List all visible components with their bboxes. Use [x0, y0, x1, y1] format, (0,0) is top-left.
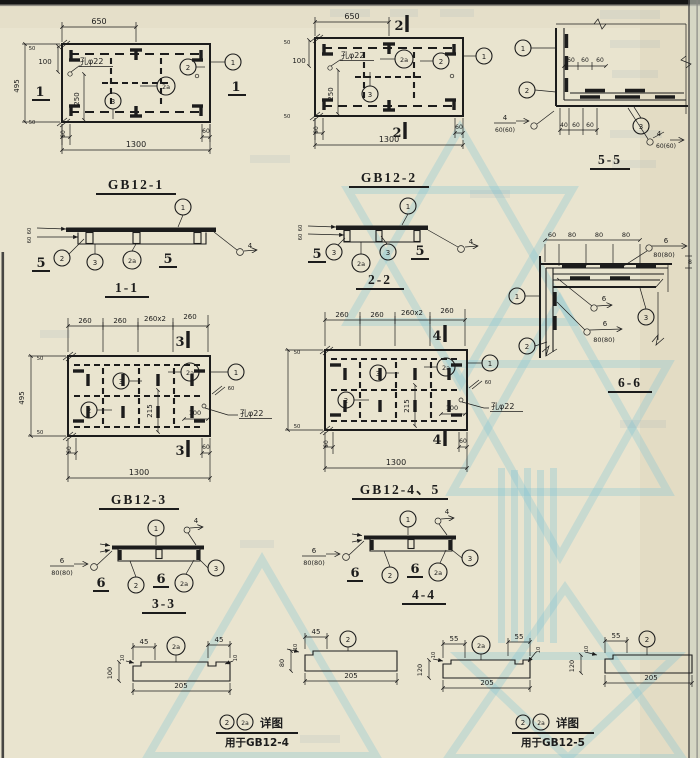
svg-text:60: 60: [202, 128, 210, 135]
svg-text:3: 3: [376, 370, 380, 378]
dim-label: 10: [293, 644, 299, 651]
svg-text:60: 60: [485, 380, 492, 386]
svg-text:2: 2: [60, 255, 64, 263]
svg-text:3: 3: [644, 314, 648, 322]
svg-text:60(60): 60(60): [495, 127, 515, 134]
figure-title: GB12-1: [96, 177, 176, 194]
svg-text:2: 2: [186, 64, 190, 72]
dim-label: 60: [548, 231, 556, 239]
svg-text:GB12-3: GB12-3: [111, 492, 167, 507]
svg-text:60: 60: [228, 386, 235, 392]
figure-title: GB12-2: [349, 170, 429, 187]
dim-label: 10: [233, 655, 239, 662]
svg-text:50: 50: [294, 424, 301, 430]
svg-text:5: 5: [415, 244, 424, 259]
svg-text:4: 4: [194, 517, 199, 525]
dim-label: 120: [568, 660, 576, 672]
hole-label: 孔φ22: [491, 402, 514, 411]
svg-text:4: 4: [445, 508, 450, 516]
svg-text:60(60): 60(60): [656, 143, 676, 150]
svg-text:6: 6: [312, 547, 317, 555]
dim-label: 250: [73, 92, 81, 105]
svg-text:2: 2: [439, 58, 443, 66]
svg-text:3: 3: [468, 555, 472, 563]
svg-text:3: 3: [332, 249, 336, 257]
svg-text:50: 50: [284, 40, 291, 46]
dim-label: 205: [344, 672, 357, 680]
dim-label: 100: [189, 409, 201, 417]
svg-text:2: 2: [134, 582, 138, 590]
dim-label: 80: [595, 231, 603, 239]
scanned-drawing-page: 650 495 孔φ22 100 250 3 2a 2 1 1 1 50 50 …: [0, 0, 700, 758]
svg-text:60: 60: [202, 444, 210, 451]
svg-text:80(80): 80(80): [303, 559, 325, 567]
dim-label: 100: [292, 57, 305, 65]
svg-text:3-3: 3-3: [152, 596, 176, 611]
svg-text:4: 4: [248, 242, 253, 250]
svg-text:1: 1: [482, 53, 486, 61]
svg-text:1: 1: [154, 525, 158, 533]
svg-text:GB12-2: GB12-2: [361, 170, 417, 185]
dim-label: 10: [584, 646, 590, 653]
dim-label: 10: [536, 647, 542, 654]
svg-text:2: 2: [394, 19, 403, 34]
svg-text:用于GB12-4: 用于GB12-4: [224, 737, 289, 749]
svg-text:50: 50: [37, 356, 44, 362]
svg-text:60: 60: [455, 124, 463, 131]
svg-text:60: 60: [313, 126, 320, 134]
svg-text:6: 6: [410, 562, 419, 577]
svg-text:2: 2: [346, 636, 350, 644]
dim-label: 40: [560, 122, 568, 129]
dim-label: 1300: [379, 135, 399, 144]
svg-text:详图: 详图: [556, 716, 579, 730]
svg-text:3: 3: [119, 378, 123, 386]
svg-text:5-5: 5-5: [598, 152, 622, 167]
dim-label: 215: [146, 404, 154, 417]
svg-text:50: 50: [294, 350, 301, 356]
dim-label: 60: [27, 237, 33, 244]
dim-label: 60: [572, 122, 580, 129]
svg-text:详图: 详图: [260, 716, 283, 730]
dim-label: 1300: [126, 140, 146, 149]
hole-label: 孔φ22: [341, 51, 364, 60]
svg-text:1: 1: [234, 369, 238, 377]
svg-text:1: 1: [515, 293, 519, 301]
dim-label: 650: [91, 17, 106, 26]
svg-text:3: 3: [175, 335, 184, 350]
dim-label: 60: [27, 228, 33, 235]
svg-text:4: 4: [503, 114, 508, 122]
dim-label: 650: [344, 12, 359, 21]
svg-text:2a: 2a: [400, 56, 408, 64]
dim-label: 55: [612, 632, 621, 640]
svg-text:50: 50: [37, 430, 44, 436]
svg-text:60: 60: [459, 438, 467, 445]
svg-text:50: 50: [29, 120, 36, 126]
dim-label: 45: [140, 638, 149, 646]
svg-text:4: 4: [469, 238, 474, 246]
svg-text:2: 2: [645, 636, 649, 644]
dim-label: 260x2: [401, 309, 423, 317]
dim-label: 260: [440, 307, 453, 315]
svg-text:1: 1: [406, 516, 410, 524]
dim-label: 60: [298, 225, 304, 232]
svg-text:3: 3: [93, 259, 97, 267]
svg-text:5: 5: [163, 252, 172, 267]
svg-text:6: 6: [60, 557, 65, 565]
svg-text:3: 3: [214, 565, 218, 573]
dim-label: 80: [278, 659, 286, 667]
svg-text:2a: 2a: [128, 257, 136, 265]
dim-label: 120: [416, 664, 424, 676]
svg-text:5: 5: [312, 247, 321, 262]
svg-text:1: 1: [231, 80, 240, 95]
svg-text:2: 2: [525, 87, 529, 95]
dim-label: 205: [644, 674, 657, 682]
svg-text:1: 1: [488, 360, 492, 368]
svg-text:1: 1: [35, 85, 44, 100]
dim-label: 215: [403, 399, 411, 412]
svg-text:2a: 2a: [162, 83, 170, 91]
svg-text:80(80): 80(80): [653, 251, 675, 259]
dim-label: 45: [215, 636, 224, 644]
svg-text:2: 2: [388, 572, 392, 580]
hole-label: 孔φ22: [240, 409, 263, 418]
svg-text:4: 4: [432, 433, 441, 448]
svg-text:6: 6: [96, 576, 105, 591]
figure-title: GB12-4、5: [352, 482, 448, 499]
svg-text:6: 6: [664, 237, 669, 245]
svg-text:4: 4: [432, 329, 441, 344]
svg-text:60: 60: [60, 130, 67, 138]
svg-text:1: 1: [521, 45, 525, 53]
dim-label: 55: [450, 635, 459, 643]
svg-text:6: 6: [156, 572, 165, 587]
svg-text:3: 3: [175, 444, 184, 459]
svg-text:3: 3: [368, 91, 372, 99]
dim-label: 250: [327, 87, 335, 100]
dim-label: 60: [586, 122, 594, 129]
svg-text:用于GB12-5: 用于GB12-5: [520, 737, 585, 749]
svg-text:2: 2: [344, 397, 348, 405]
dim-label: 55: [515, 633, 524, 641]
svg-text:50: 50: [284, 114, 291, 120]
svg-text:6: 6: [603, 320, 608, 328]
dim-label: 205: [174, 682, 187, 690]
dim-label: 100: [38, 58, 51, 66]
dim-label: 80: [622, 231, 630, 239]
svg-text:6: 6: [350, 566, 359, 581]
dim-label: 60: [596, 57, 604, 64]
dim-label: 260: [335, 311, 348, 319]
dim-label: 260x2: [144, 315, 166, 323]
dim-label: 60: [298, 234, 304, 241]
dim-label: 60: [567, 57, 575, 64]
svg-text:2a: 2a: [357, 260, 365, 268]
svg-text:2a: 2a: [180, 580, 188, 588]
svg-text:5: 5: [36, 256, 45, 271]
dim-label: 1300: [129, 468, 149, 477]
svg-text:2: 2: [525, 343, 529, 351]
svg-text:80(80): 80(80): [51, 569, 73, 577]
svg-text:1: 1: [181, 204, 185, 212]
svg-text:2a: 2a: [241, 720, 249, 727]
dim-label: 205: [480, 679, 493, 687]
svg-text:6: 6: [602, 295, 607, 303]
dim-label: 80: [568, 231, 576, 239]
svg-text:80(80): 80(80): [593, 336, 615, 344]
svg-text:2-2: 2-2: [368, 272, 392, 287]
svg-text:2a: 2a: [477, 642, 485, 650]
svg-text:2: 2: [225, 719, 229, 727]
hole-label: 孔φ22: [80, 57, 103, 66]
svg-text:2: 2: [521, 719, 525, 727]
dim-label: 495: [18, 391, 26, 404]
dim-label: 1300: [386, 458, 406, 467]
paper-background: [0, 0, 700, 758]
svg-text:GB12-4、5: GB12-4、5: [360, 482, 441, 497]
svg-text:1: 1: [231, 59, 235, 67]
svg-text:4-4: 4-4: [412, 587, 436, 602]
svg-text:60: 60: [66, 446, 73, 454]
svg-text:2a: 2a: [172, 643, 180, 651]
svg-text:2a: 2a: [537, 720, 545, 727]
svg-text:GB12-1: GB12-1: [108, 177, 164, 192]
dim-label: 260: [78, 317, 91, 325]
dim-label: 100: [106, 667, 114, 679]
svg-text:2a: 2a: [434, 569, 442, 577]
dim-label: 60: [581, 57, 589, 64]
svg-text:8: 8: [688, 259, 692, 266]
svg-text:3: 3: [111, 98, 115, 106]
dim-label: 10: [431, 652, 437, 659]
svg-text:1: 1: [406, 203, 410, 211]
svg-text:2: 2: [87, 407, 91, 415]
svg-text:2a: 2a: [442, 364, 450, 372]
dim-label: 45: [312, 628, 321, 636]
dim-label: 100: [446, 404, 458, 412]
dim-label: 260: [183, 313, 196, 321]
figure-title: GB12-3: [99, 492, 179, 509]
svg-text:1-1: 1-1: [115, 280, 139, 295]
dim-label: 10: [120, 655, 126, 662]
svg-text:60: 60: [323, 440, 330, 448]
svg-text:2a: 2a: [186, 369, 194, 377]
svg-text:50: 50: [29, 46, 36, 52]
svg-text:6-6: 6-6: [618, 375, 642, 390]
svg-text:3: 3: [639, 123, 643, 131]
svg-text:3: 3: [386, 249, 390, 257]
dim-label: 260: [113, 317, 126, 325]
dim-label: 260: [370, 311, 383, 319]
dim-label: 495: [13, 79, 21, 92]
